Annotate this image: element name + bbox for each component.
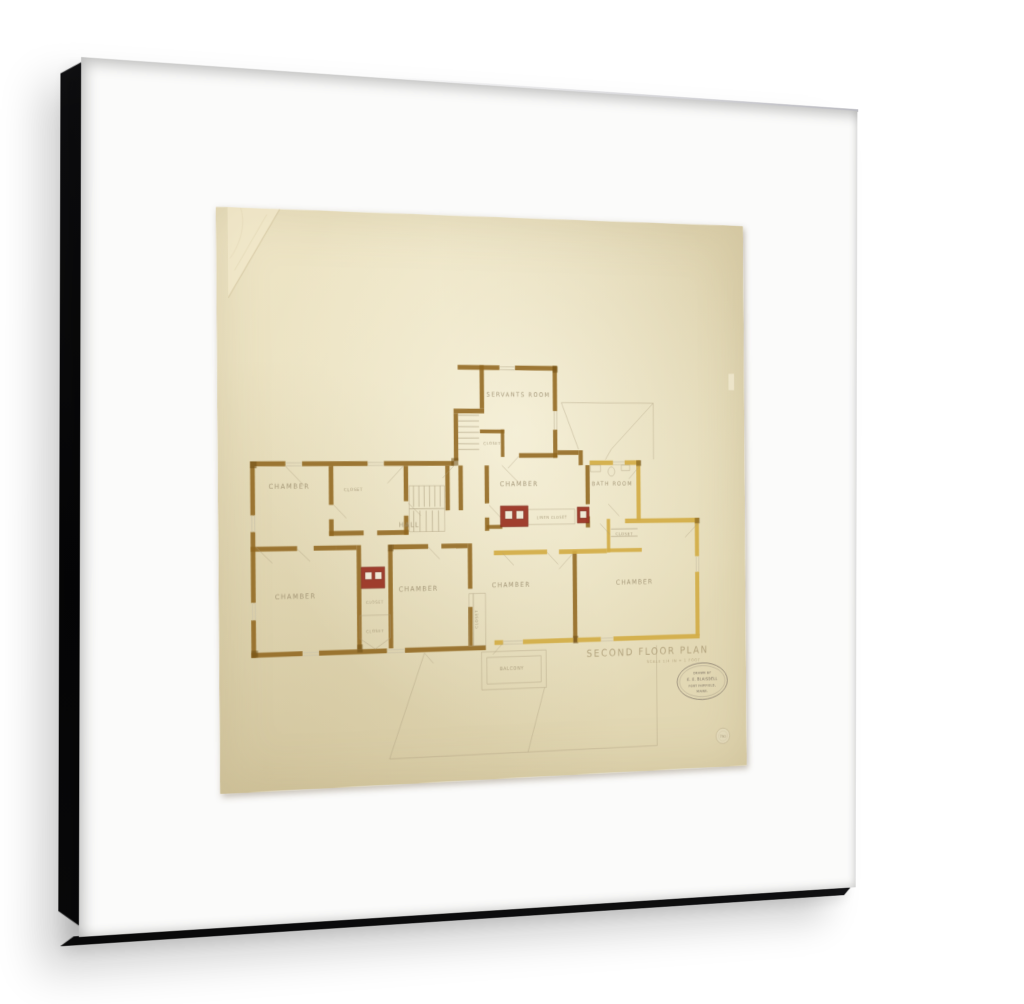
room-label-closet-4: CLOSET	[366, 600, 384, 605]
room-label-chamber-1: CHAMBER	[268, 483, 309, 491]
stamp-line-3: FORT FAIRFIELD,	[689, 683, 716, 688]
room-label-servants-room: SERVANTS ROOM	[486, 391, 550, 399]
floor-plan-drawing: SERVANTS ROOM CLOSET CHAMBER CLOSET HALL…	[216, 207, 747, 794]
room-label-chamber-6: CHAMBER	[616, 578, 653, 586]
room-label-chamber-4: CHAMBER	[399, 585, 439, 594]
room-label-chamber-5: CHAMBER	[492, 581, 531, 589]
drawing-paper: SERVANTS ROOM CLOSET CHAMBER CLOSET HALL…	[216, 207, 747, 794]
title-block: SECOND FLOOR PLAN SCALE 1/4 IN = 1 FOOT	[587, 644, 709, 666]
room-label-closet-5: CLOSET	[366, 628, 384, 633]
black-gallery-frame: SERVANTS ROOM CLOSET CHAMBER CLOSET HALL…	[79, 57, 858, 937]
architect-stamp: DRAWN BY E. E. BLAISDELL FORT FAIRFIELD,…	[677, 662, 727, 701]
room-label-hall: HALL	[399, 521, 420, 529]
embossed-seal: 790	[716, 728, 730, 744]
room-label-chamber-3: CHAMBER	[275, 592, 316, 601]
scale-note: SCALE 1/4 IN = 1 FOOT	[647, 658, 701, 665]
picture-frame-3d: SERVANTS ROOM CLOSET CHAMBER CLOSET HALL…	[79, 57, 858, 937]
stamp-line-4: MAINE.	[697, 689, 709, 693]
room-label-closet-6: CLOSET	[474, 610, 478, 629]
pencil-roof-outline-lower	[389, 645, 657, 759]
walls-brown	[249, 362, 591, 658]
photo-of-framed-artwork: SERVANTS ROOM CLOSET CHAMBER CLOSET HALL…	[0, 0, 1024, 1004]
paper-fold	[227, 207, 280, 299]
paper-edge-tab	[728, 374, 734, 390]
room-label-chamber-2: CHAMBER	[500, 480, 539, 488]
seal-number: 790	[720, 734, 727, 739]
room-label-balcony: BALCONY	[500, 666, 524, 673]
white-mat: SERVANTS ROOM CLOSET CHAMBER CLOSET HALL…	[79, 57, 858, 937]
room-label-closet-2: CLOSET	[344, 487, 363, 493]
room-label-bath-room: BATH ROOM	[592, 481, 633, 488]
room-label-closet-1: CLOSET	[484, 441, 501, 446]
stamp-line-2: E. E. BLAISDELL	[687, 676, 718, 682]
room-label-linen-closet: LINEN CLOSET	[537, 515, 568, 520]
room-label-closet-3: CLOSET	[616, 532, 633, 538]
stamp-line-1: DRAWN BY	[693, 671, 711, 675]
